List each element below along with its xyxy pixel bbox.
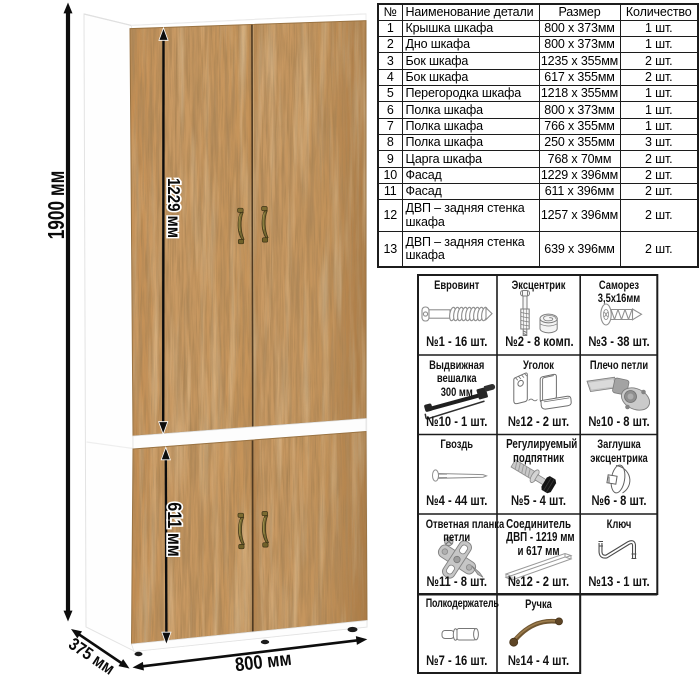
svg-text:611 мм: 611 мм [163,502,185,556]
svg-text:1229 мм: 1229 мм [164,178,183,238]
svg-text:375 мм: 375 мм [65,634,118,679]
svg-text:1900 мм: 1900 мм [45,171,70,240]
svg-text:800 мм: 800 мм [234,647,293,675]
